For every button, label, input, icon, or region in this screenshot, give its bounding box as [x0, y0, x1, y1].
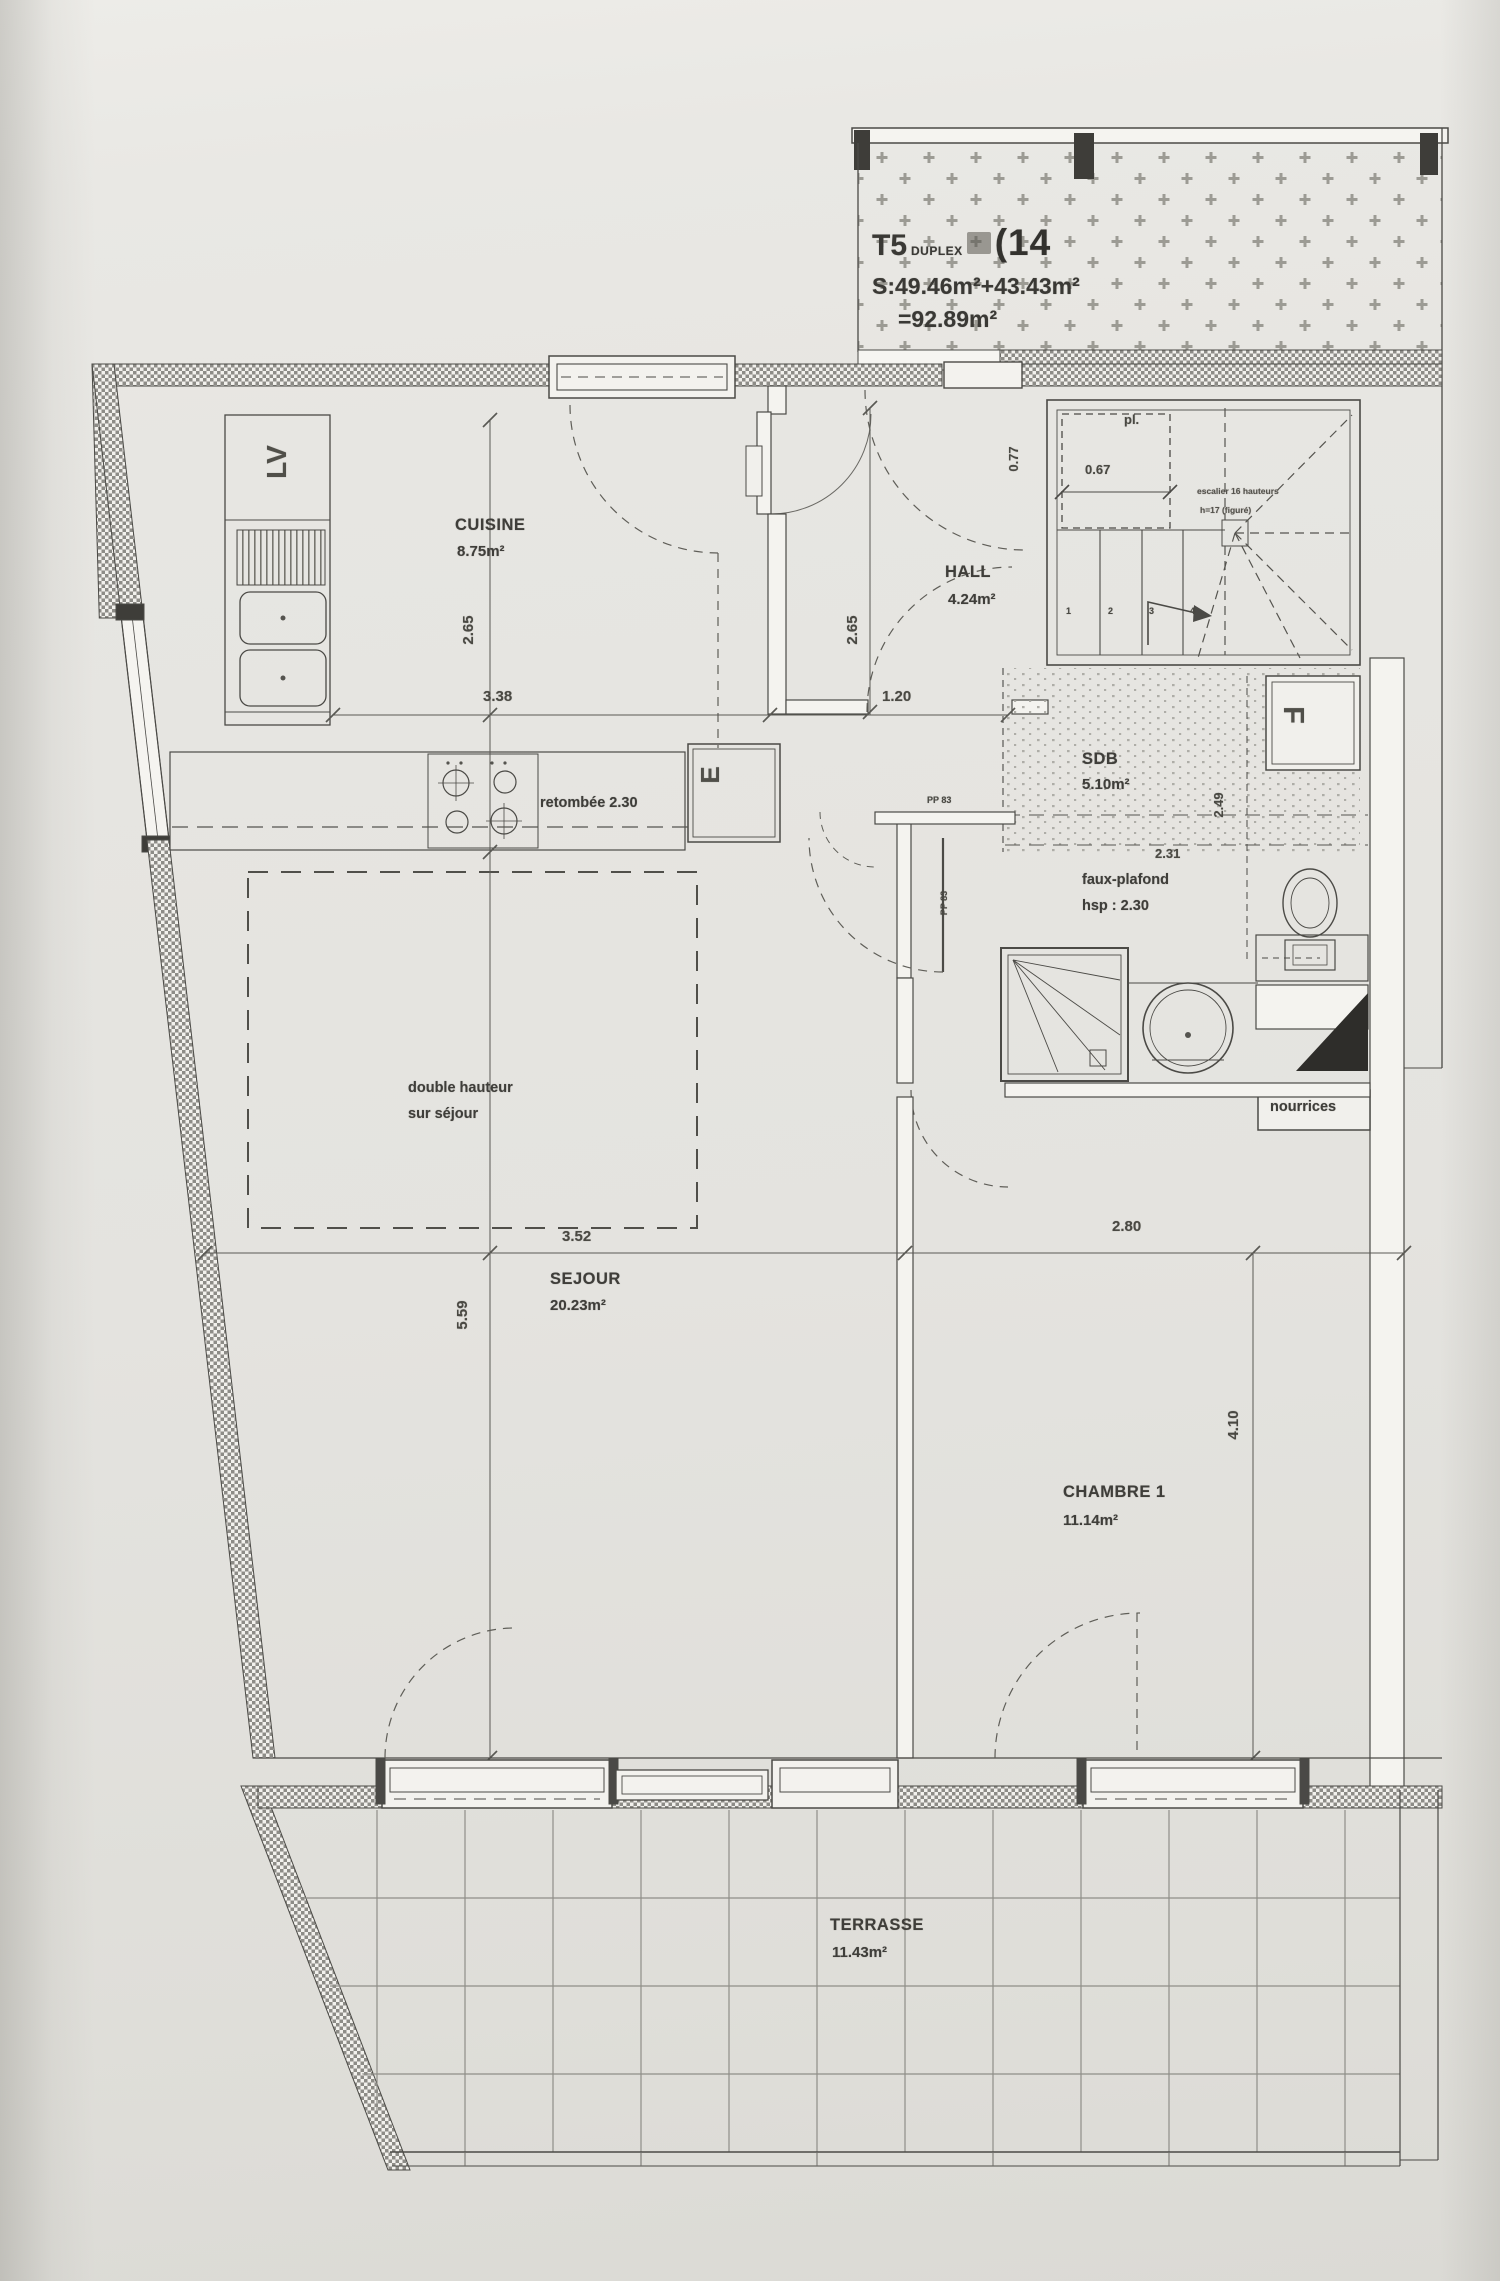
room-label-sejour: SEJOUR [550, 1270, 621, 1289]
toilet [1283, 869, 1337, 970]
terrace-door-swings [385, 1613, 1140, 1758]
dim-closet: 0.67 [1085, 462, 1110, 477]
room-label-chambre1: CHAMBRE 1 [1063, 1483, 1166, 1502]
room-area-sdb: 5.10m² [1082, 776, 1130, 793]
lot-number: (14 [995, 222, 1051, 264]
stair-direction-arrow [1148, 602, 1212, 645]
room-area-terrasse: 11.43m² [832, 1944, 887, 1961]
scanned-floor-plan: T5 DUPLEX (14 S:49.46m²+43.43m² =92.89m²… [0, 0, 1500, 2281]
shower-room [809, 812, 1370, 1187]
left-wall [92, 364, 410, 2170]
room-label-hall: HALL [945, 563, 991, 582]
washbasin [1128, 983, 1258, 1073]
shower [1001, 948, 1128, 1081]
step-number-3: 3 [1149, 606, 1154, 616]
left-wall-window [116, 604, 170, 852]
double-hauteur-line1: double hauteur [408, 1080, 513, 1096]
unit-type: T5 [872, 229, 907, 263]
step-number-2: 2 [1108, 606, 1113, 616]
dim-cuisine-height: 2.65 [458, 607, 478, 653]
room-label-cuisine: CUISINE [455, 516, 525, 535]
room-area-sejour: 20.23m² [550, 1297, 606, 1314]
dim-hall-width: 1.20 [882, 688, 911, 705]
dim-chambre-width: 2.80 [1112, 1218, 1141, 1235]
terrace [300, 1790, 1438, 2166]
hall-closet [1062, 414, 1170, 528]
room-area-chambre1: 11.14m² [1063, 1512, 1118, 1529]
room-label-sdb: SDB [1082, 750, 1118, 769]
dim-hall-height: 2.65 [842, 607, 862, 653]
stair-note-line1: escalier 16 hauteurs [1197, 486, 1279, 496]
stove [428, 754, 538, 848]
kitchen-window [549, 356, 735, 398]
placard-label: pl. [1124, 412, 1139, 427]
retombee-note: retombée 2.30 [540, 795, 638, 811]
drainboard [237, 530, 325, 585]
kitchen-sink [240, 592, 326, 706]
window-small [772, 1760, 898, 1808]
kitchen-hall-partition [746, 386, 871, 714]
room-label-terrasse: TERRASSE [830, 1916, 924, 1935]
door-pp83-side-label: PP 83 [931, 881, 957, 925]
dim-chambre-height: 4.10 [1223, 1402, 1243, 1448]
double-hauteur-line2: sur séjour [408, 1106, 478, 1122]
room-area-cuisine: 8.75m² [457, 543, 505, 560]
door-pp83-top-leaf [875, 812, 1015, 824]
surface-line: S:49.46m²+43.43m² [872, 273, 1080, 300]
sdb-room [1003, 668, 1368, 970]
staircase [1047, 400, 1360, 665]
door-pp83-top-label: PP 83 [927, 795, 951, 805]
dishwasher-label: LV [257, 435, 297, 489]
entry-door [944, 362, 1022, 388]
chambre-window [1077, 1758, 1309, 1808]
dim-sejour-width: 3.52 [562, 1228, 591, 1245]
bottom-wall [253, 1613, 1442, 1808]
right-wall [1370, 658, 1404, 1790]
faux-plafond-line1: faux-plafond [1082, 872, 1169, 888]
dim-sdb-height: 2.49 [1209, 783, 1227, 827]
unit-subtype: DUPLEX [911, 244, 963, 258]
terrace-left-wall [241, 1786, 410, 2170]
closet-f-label: F [1273, 695, 1313, 735]
floor-plan-drawing [0, 0, 1500, 2281]
dim-sejour-height: 5.59 [452, 1292, 472, 1338]
total-surface: =92.89m² [872, 306, 1080, 333]
step-number-4: 4 [1190, 606, 1195, 616]
stair-note-line2: h=17 (figuré) [1200, 505, 1251, 515]
step-number-1: 1 [1066, 606, 1071, 616]
title-block: T5 DUPLEX (14 S:49.46m²+43.43m² =92.89m² [872, 222, 1080, 333]
room-area-hall: 4.24m² [948, 591, 996, 608]
stair-winders [1198, 408, 1352, 658]
appliance-e-label: E [690, 755, 730, 795]
dim-cuisine-width: 3.38 [483, 688, 512, 705]
double-height-zone [248, 872, 697, 1228]
dim-sdb-width: 2.31 [1155, 846, 1180, 861]
stamp-smudge [967, 232, 991, 254]
faux-plafond-line2: hsp : 2.30 [1082, 898, 1149, 914]
nourrices-label: nourrices [1270, 1099, 1336, 1115]
sejour-window [376, 1758, 618, 1808]
window-middle [616, 1770, 768, 1800]
dim-entry-door: 0.77 [1004, 439, 1022, 479]
